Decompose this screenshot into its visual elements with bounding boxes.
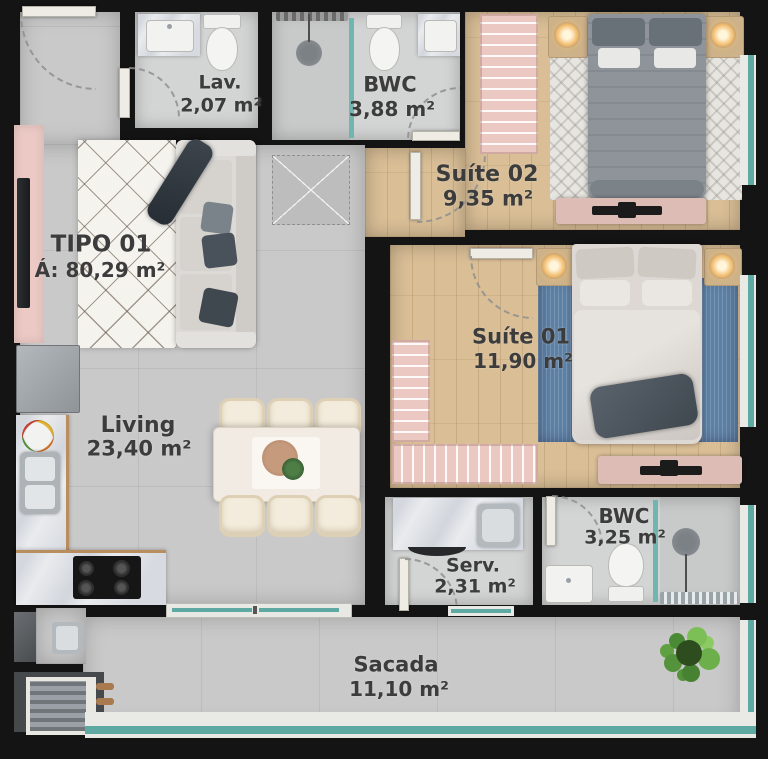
sliding-door-glass-left [172,608,252,612]
grill-rack [26,677,94,735]
shower-head-top [296,40,322,66]
tv-panel [17,178,30,308]
shower-head-low [672,528,700,556]
sofa-armrest-bottom [176,332,256,348]
suite01-wardrobe-foot [392,444,538,484]
room-label-suite02-area: 9,35 m² [443,189,533,210]
room-label-lav-name: Lav. [199,74,242,93]
suite01-pillow-front-right [642,280,692,306]
suite02-pillow-white-right [654,48,696,68]
dining-chair-6 [315,495,361,537]
suite02-lamp-left [554,22,580,48]
sofa-pillow-light [200,201,234,235]
suite02-lamp-right [710,22,736,48]
sliding-door-handle [253,606,257,614]
kitchen-sink-basin-top [25,457,55,481]
sofa-pillow-dark-2 [198,287,239,328]
bwc-low-faucet [566,578,571,583]
suite02-bed-foot [590,180,704,198]
bwc-low-window [740,505,756,603]
shower-mat-low [660,592,738,604]
plan-title-area: Á: 80,29 m² [35,260,166,280]
serv-sacada-window [448,606,514,616]
room-label-suite02-name: Suíte 02 [436,164,539,186]
sofa-backrest [236,146,256,342]
room-label-bwc-top-name: BWC [363,75,416,96]
room-label-sacada-area: 11,10 m² [349,679,449,699]
shower-stem-low [685,554,687,594]
utility-sink [52,622,82,654]
kitchen-sink-basin-bottom [25,485,55,509]
lav-toilet-bowl [206,27,238,71]
suite01-media-box [660,460,678,476]
room-label-bwc-low-area: 3,25 m² [584,529,666,548]
kitchen-sink [20,452,60,514]
suite02-pillow-dark-left [592,18,645,46]
lav-door-leaf [119,68,130,118]
sacada-window-bottom [85,712,756,738]
shower-area-low [660,497,740,605]
sliding-door-glass-right [259,608,339,612]
suite01-pillow-front-left [580,280,630,306]
sliding-door-track [166,603,352,618]
bwc-top-sink [424,20,457,52]
room-label-living-name: Living [101,415,176,437]
shower-drain-top [276,12,348,21]
room-label-suite01-area: 11,90 m² [473,351,573,371]
suite02-pillow-dark-right [649,18,702,46]
room-label-serv-area: 2,31 m² [434,578,516,597]
room-label-bwc-low-name: BWC [599,506,650,526]
lav-faucet [167,24,172,29]
room-label-bwc-top-area: 3,88 m² [349,99,435,119]
suite01-wardrobe-side [392,340,430,442]
hall-shaft-mat [272,155,350,225]
suite02-pillow-white-left [598,48,640,68]
suite02-wardrobe [480,14,538,154]
sofa-pillow-dark-1 [201,232,238,269]
bwc-low-toilet-tank [608,586,644,602]
room-label-serv-name: Serv. [446,557,500,576]
room-label-sacada-name: Sacada [353,655,438,676]
laundry-tank-basin [482,509,514,542]
utility-sink-basin [56,626,78,650]
dining-chair-4 [219,495,265,537]
room-label-living-area: 23,40 m² [87,439,192,460]
skewer-handle-2 [96,698,114,705]
suite02-media-box [618,202,636,218]
suite02-bed [588,14,706,200]
sacada-plant [676,640,702,666]
shower-glass-low [653,500,658,602]
bwc-low-sink [545,565,593,603]
shaft [14,612,36,662]
bwc-top-toilet-bowl [369,27,400,71]
suite01-lamp-left [541,253,567,279]
plan-title-name: TIPO 01 [51,234,152,257]
fruit-bowl [22,420,54,452]
cooktop [73,556,141,599]
skewer-handle-1 [96,683,114,690]
room-label-lav-area: 2,07 m² [180,97,262,116]
floor-plan: Lav. 2,07 m² BWC 3,88 m² Suíte 02 9,35 m… [0,0,768,759]
suite01-pillow-back-right [637,247,696,280]
fridge [16,345,80,413]
suite02-window [740,55,756,185]
laundry-tank [477,504,519,547]
centerpiece-plant [282,458,304,480]
suite01-pillow-back-left [575,247,634,280]
bwc-low-toilet-bowl [608,543,644,587]
room-label-suite01-name: Suíte 01 [472,327,570,348]
suite01-window [740,275,756,427]
shower-stem-top [308,14,310,42]
suite01-lamp-right [709,253,735,279]
shower-area-top [272,12,350,140]
dining-chair-5 [267,495,313,537]
